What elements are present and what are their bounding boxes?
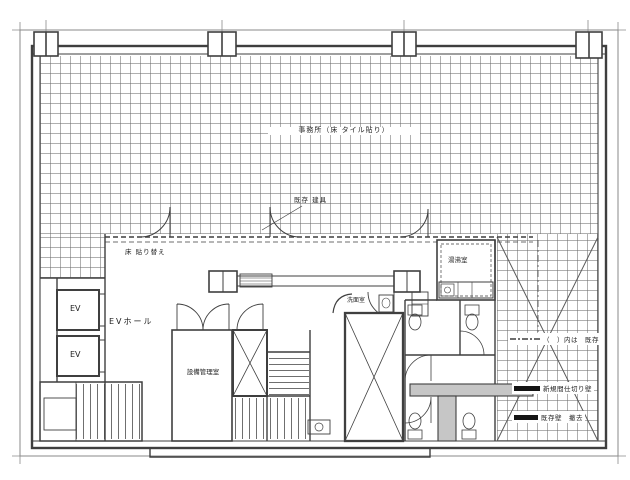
elevator-2-label: EV — [69, 351, 82, 360]
core-top-wall-assembly — [209, 271, 428, 318]
hot-water-room — [437, 240, 495, 300]
fixture-note-label: 既存 建具 — [293, 197, 328, 204]
large-shaft — [333, 294, 403, 441]
elevator-1-label: EV — [69, 305, 82, 314]
dash-dot-line-swatch — [510, 336, 540, 342]
equipment-room-label: 設備管理室 — [175, 369, 231, 376]
plan-linework — [0, 0, 630, 480]
stair-bottom-left — [40, 382, 142, 441]
core-stair-and-shaft — [233, 330, 310, 441]
office-room-label: 事務所（床 タイル貼り） — [268, 127, 420, 135]
legend-item-existing: （ ）内は 既存 — [508, 333, 601, 345]
hot-water-room-label: 湯沸室 — [447, 257, 469, 264]
corner-tick-marks — [12, 20, 626, 464]
floor-note-label: 床 貼り替え — [124, 249, 167, 256]
legend-label: 既存壁 撤去 — [541, 412, 583, 422]
ev-hall-label: EVホール — [108, 318, 155, 327]
floor-plan-sheet: 事務所（床 タイル貼り） 既存 建具 床 貼り替え EVホール EV EV 設備… — [0, 0, 630, 480]
partition-door-arcs — [140, 206, 428, 237]
legend-item-removed-wall: 既存壁 撤去 — [512, 411, 585, 423]
wash-basin — [308, 420, 330, 434]
solid-bar-swatch — [514, 415, 538, 420]
solid-bar-swatch — [514, 386, 540, 391]
legend-label: （ ）内は 既存 — [543, 334, 599, 344]
washroom-label: 洗面室 — [346, 298, 366, 305]
legend-label: 新規間仕切り壁 — [543, 383, 592, 393]
legend-item-new-partition: 新規間仕切り壁 — [512, 382, 594, 394]
